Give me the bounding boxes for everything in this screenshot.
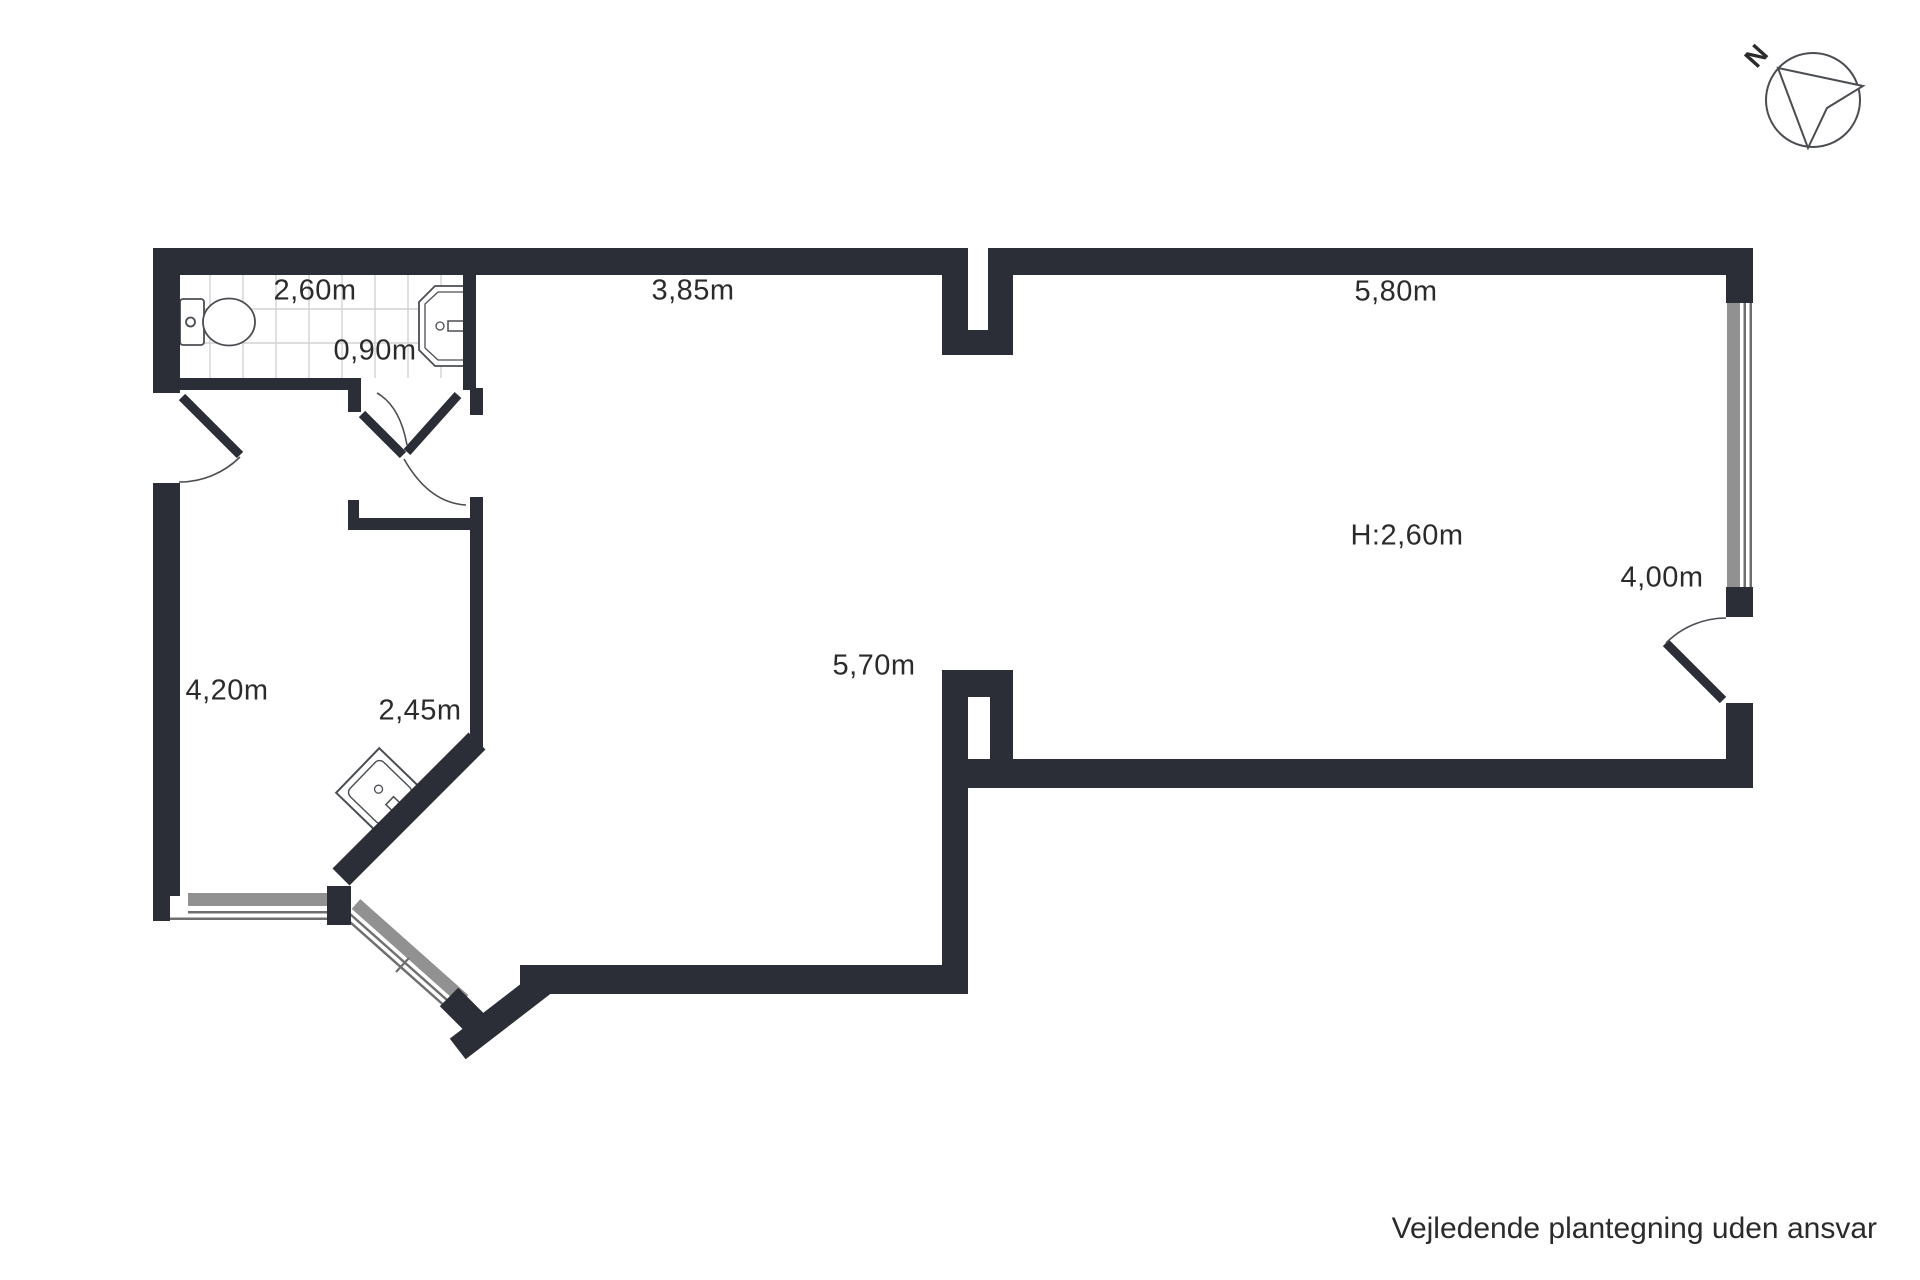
floorplan-drawing: N	[0, 0, 1920, 1280]
disclaimer-text: Vejledende plantegning uden ansvar	[1392, 1212, 1877, 1246]
dimension-label-ceiling-height: H:2,60m	[1350, 520, 1463, 553]
dimension-label-bathroom-width: 2,60m	[273, 275, 356, 308]
compass: N	[1739, 39, 1863, 148]
dimension-label-left-room-width: 2,45m	[378, 695, 461, 728]
hall-door	[404, 395, 466, 505]
bathroom-sink-icon	[419, 286, 469, 366]
right-window	[1727, 303, 1752, 587]
dimension-label-right-room-width: 5,80m	[1354, 276, 1437, 309]
bay-window-horizontal	[153, 893, 328, 920]
floorplan-page: N 2,60m0,90m3,85m5,80mH:2,60m4,00m4,20m2…	[0, 0, 1920, 1280]
bathroom-door	[362, 393, 407, 455]
compass-north-label: N	[1739, 39, 1774, 74]
dimension-label-left-room-depth: 4,20m	[185, 675, 268, 708]
dimension-label-bathroom-depth: 0,90m	[333, 335, 416, 368]
entry-door	[179, 397, 240, 482]
north-arrow-icon	[1778, 68, 1863, 148]
dimension-label-top-room-width: 3,85m	[651, 275, 734, 308]
dimension-label-main-room-width: 5,70m	[832, 650, 915, 683]
toilet-icon	[180, 299, 255, 346]
dimension-label-right-room-depth: 4,00m	[1620, 562, 1703, 595]
bay-window-diagonal	[346, 904, 464, 1013]
right-room-door	[1666, 618, 1726, 700]
